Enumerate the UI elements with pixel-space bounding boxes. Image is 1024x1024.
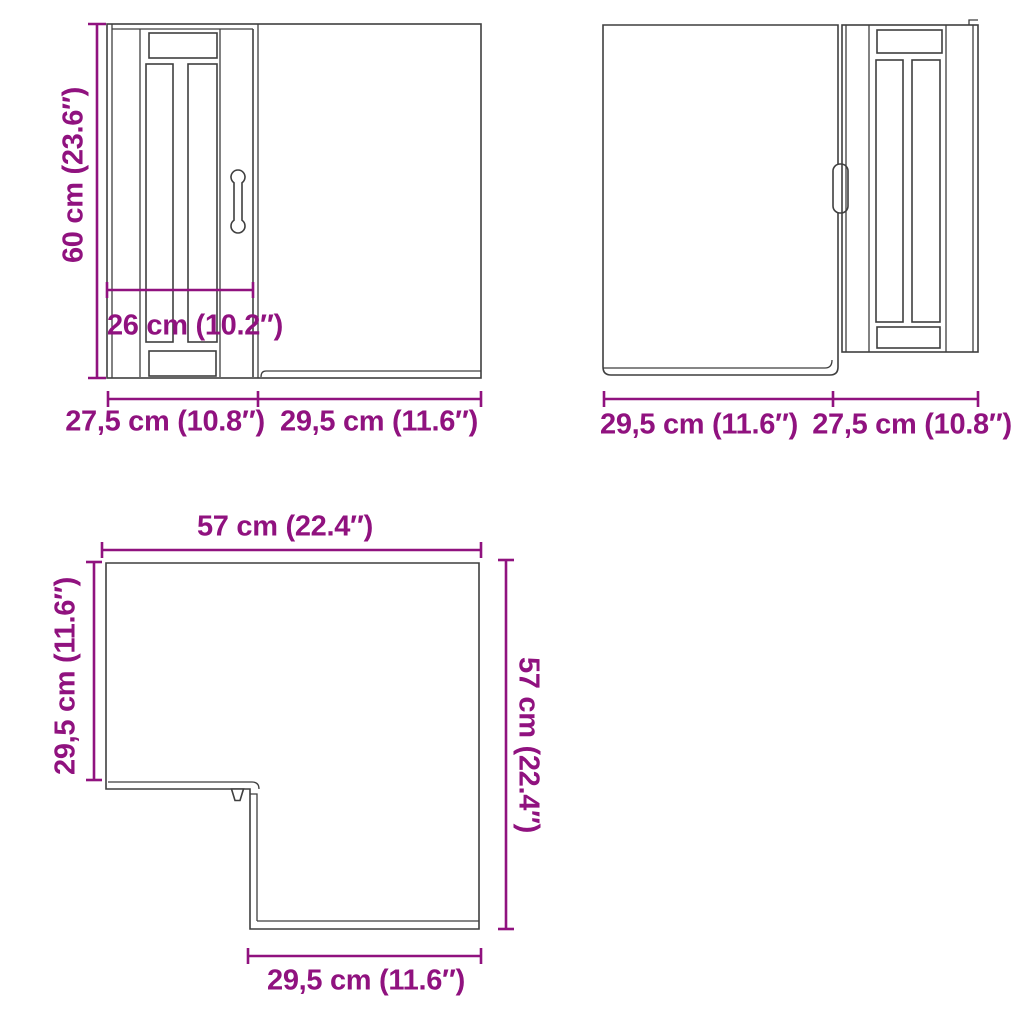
dim-label-plan-bottom-depth: 29,5 cm (11.6″) [267, 965, 465, 998]
door-left-vertical-panel [876, 60, 903, 322]
door-handle-top-view [232, 789, 244, 801]
dim-label-plan-right-height: 57 cm (22.4″) [512, 657, 545, 833]
dim-label-right-side-width: 29,5 cm (11.6″) [600, 409, 798, 442]
dim-label-plan-left-depth: 29,5 cm (11.6″) [50, 577, 83, 775]
dim-label-inner-width-26: 26 cm (10.2″) [107, 310, 283, 343]
dim-label-plan-top-width: 57 cm (22.4″) [197, 511, 373, 544]
side-panel-outline [603, 25, 838, 375]
door-top-panel [149, 33, 217, 58]
diagram-line-art [0, 0, 1024, 1024]
corner-cabinet-plan-outline [106, 563, 479, 929]
door-right-vertical-panel [912, 60, 940, 322]
front-right-cabinet-drawing [603, 20, 978, 375]
door-front-strip-vertical [250, 794, 257, 921]
door-handle [231, 170, 245, 233]
dim-label-height-60: 60 cm (23.6″) [58, 87, 91, 263]
door-right-vertical-panel [188, 64, 217, 342]
cabinet-dimension-diagram: 60 cm (23.6″) 26 cm (10.2″) 27,5 cm (10.… [0, 0, 1024, 1024]
door-left-vertical-panel [146, 64, 173, 342]
door-bottom-panel [877, 327, 940, 348]
plan-view-drawing [106, 563, 479, 929]
dim-label-left-door-width: 27,5 cm (10.8″) [65, 406, 265, 439]
door-bottom-panel [149, 351, 216, 376]
dim-label-right-door-width: 27,5 cm (10.8″) [812, 409, 1012, 442]
door-front-strip-horizontal [108, 782, 259, 789]
dim-label-left-side-width: 29,5 cm (11.6″) [280, 406, 478, 439]
door-outline [842, 25, 978, 352]
side-panel-bottom-lip [261, 371, 481, 377]
side-panel-bottom-lip [603, 360, 832, 368]
door-top-panel [877, 30, 942, 53]
